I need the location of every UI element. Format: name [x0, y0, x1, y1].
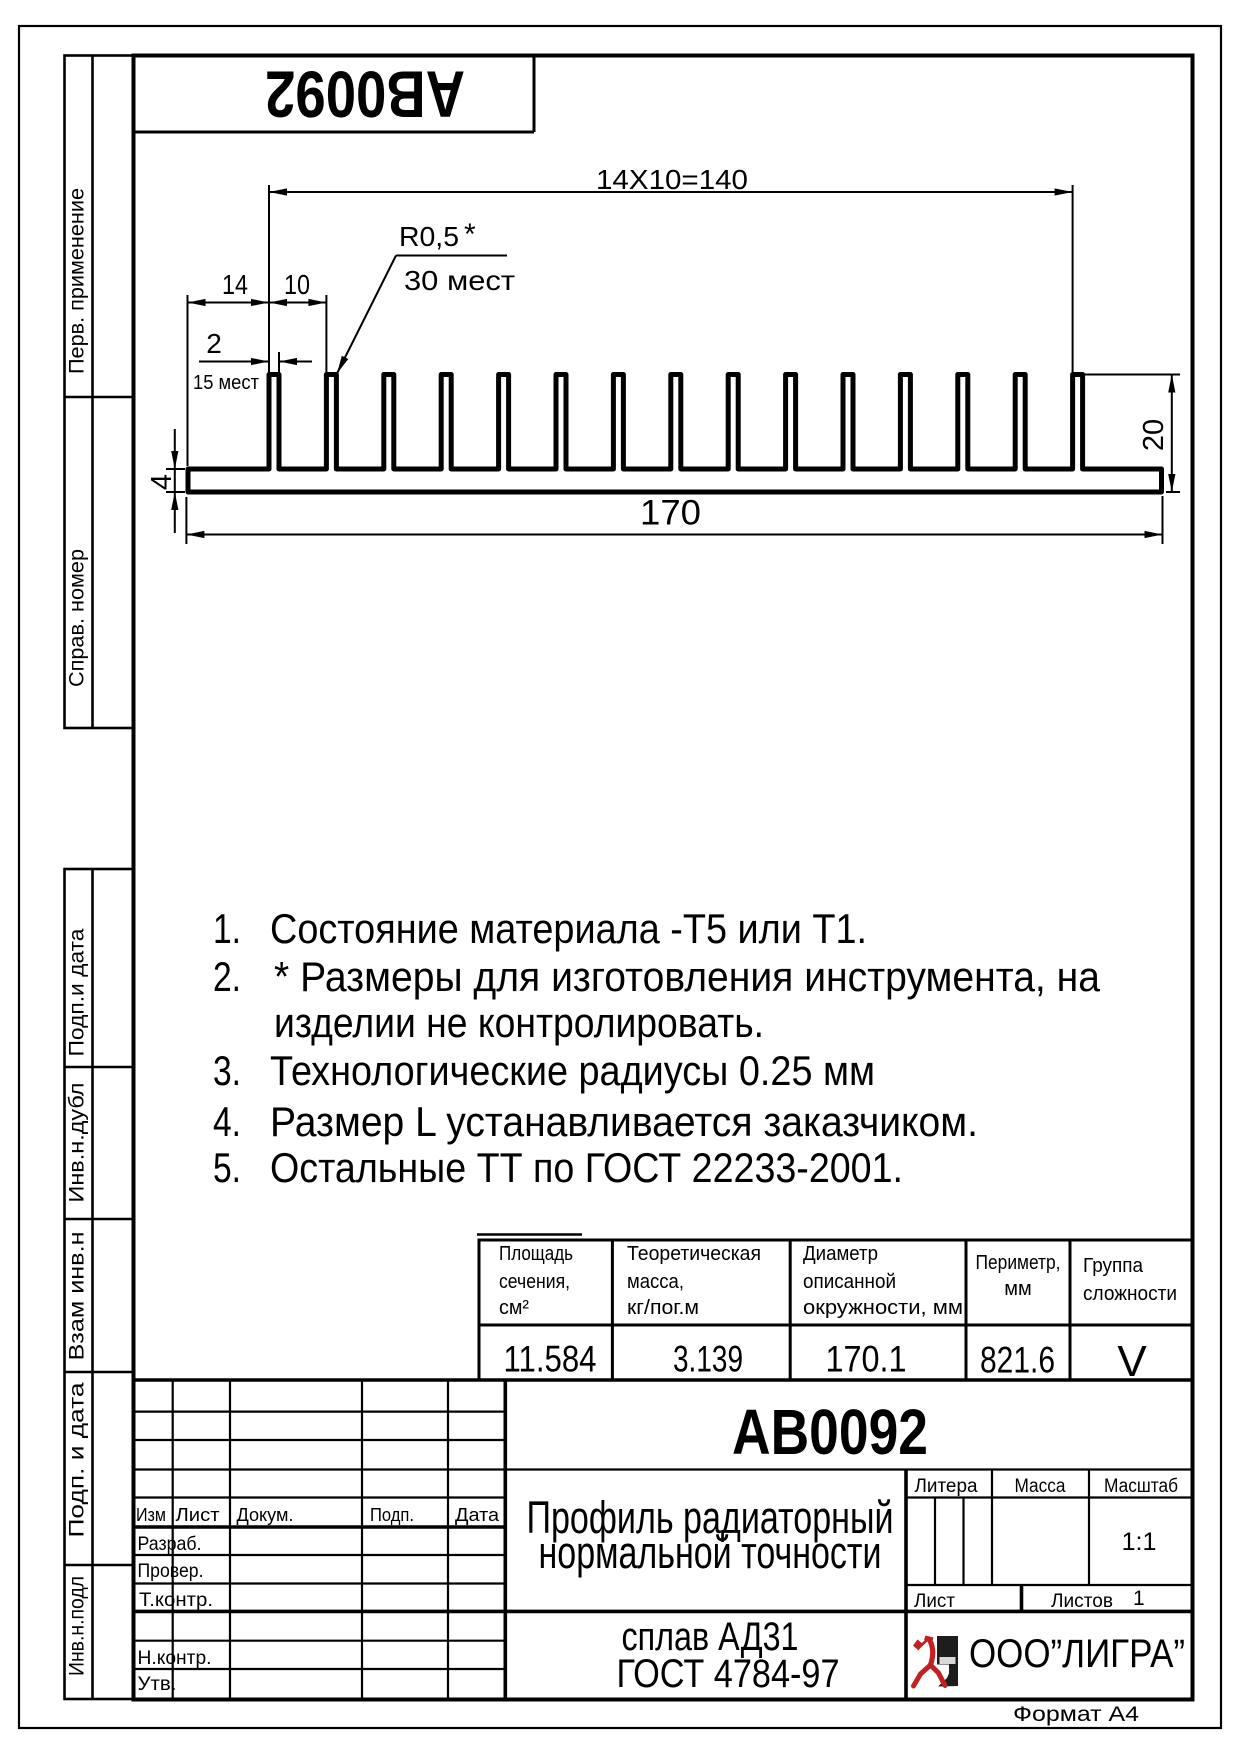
- svg-text:ГОСТ 4784-97: ГОСТ 4784-97: [617, 1652, 840, 1696]
- svg-text:Подп.: Подп.: [370, 1505, 414, 1525]
- svg-text:30 мест: 30 мест: [404, 265, 515, 296]
- svg-text:Утв.: Утв.: [138, 1673, 177, 1695]
- svg-text:Листов: Листов: [1051, 1591, 1113, 1612]
- svg-text:ООО”ЛИГРА”: ООО”ЛИГРА”: [969, 1632, 1185, 1676]
- svg-text:Докум.: Докум.: [237, 1505, 294, 1525]
- svg-text:Лист: Лист: [176, 1505, 220, 1525]
- svg-text:Теоретическая: Теоретическая: [627, 1243, 761, 1265]
- svg-text:3.: 3.: [213, 1047, 241, 1094]
- svg-text:4: 4: [146, 474, 178, 490]
- svg-text:2.: 2.: [213, 953, 241, 1000]
- svg-text:1:1: 1:1: [1122, 1528, 1157, 1556]
- svg-text:мм: мм: [1004, 1278, 1032, 1300]
- svg-text:1: 1: [1133, 1587, 1145, 1610]
- svg-text:15 мест: 15 мест: [193, 372, 259, 394]
- svg-text:Справ. номер: Справ. номер: [66, 549, 89, 687]
- svg-text:Технологические радиусы 0.25 м: Технологические радиусы 0.25 мм: [270, 1047, 875, 1094]
- svg-text:1.: 1.: [213, 905, 241, 952]
- svg-text:Т.контр.: Т.контр.: [139, 1589, 213, 1611]
- svg-text:Состояние материала -Т5 или Т1: Состояние материала -Т5 или Т1.: [270, 905, 867, 952]
- svg-text:нормальной точности: нормальной точности: [539, 1527, 882, 1578]
- svg-text:20: 20: [1138, 419, 1170, 451]
- svg-text:Изм: Изм: [136, 1505, 166, 1525]
- svg-text:11.584: 11.584: [504, 1339, 597, 1380]
- svg-text:2: 2: [206, 328, 222, 359]
- svg-text:14: 14: [222, 269, 248, 300]
- svg-text:14Х10=140: 14Х10=140: [596, 164, 748, 195]
- svg-text:кг/пог.м: кг/пог.м: [627, 1297, 699, 1319]
- svg-text:Диаметр: Диаметр: [803, 1243, 878, 1265]
- svg-text:*: *: [464, 218, 476, 251]
- svg-text:Масштаб: Масштаб: [1104, 1476, 1178, 1497]
- svg-text:3.139: 3.139: [673, 1339, 743, 1380]
- svg-text:Н.контр.: Н.контр.: [138, 1647, 212, 1669]
- svg-text:Группа: Группа: [1083, 1255, 1144, 1277]
- svg-text:821.6: 821.6: [980, 1340, 1055, 1381]
- svg-text:Масса: Масса: [1015, 1476, 1066, 1497]
- svg-text:* Размеры для изготовления инс: * Размеры для изготовления инструмента, …: [274, 953, 1101, 1000]
- svg-text:масса,: масса,: [627, 1271, 684, 1293]
- svg-text:Периметр,: Периметр,: [976, 1252, 1061, 1274]
- svg-text:Взам инв.н: Взам инв.н: [66, 1232, 89, 1361]
- svg-text:170: 170: [640, 494, 701, 533]
- svg-text:4.: 4.: [213, 1098, 241, 1145]
- svg-text:Площадь: Площадь: [499, 1243, 573, 1265]
- svg-text:Размер L устанавливается заказ: Размер L устанавливается заказчиком.: [270, 1098, 978, 1145]
- svg-text:Инв.н.подл: Инв.н.подл: [66, 1576, 89, 1676]
- svg-text:Разраб.: Разраб.: [138, 1533, 202, 1555]
- svg-text:Формат А4: Формат А4: [1013, 1703, 1139, 1726]
- svg-text:описанной: описанной: [803, 1271, 896, 1293]
- svg-text:Остальные ТТ по ГОСТ 22233-200: Остальные ТТ по ГОСТ 22233-2001.: [270, 1144, 903, 1191]
- svg-text:Литера: Литера: [915, 1476, 978, 1497]
- svg-text:R0,5: R0,5: [399, 221, 459, 252]
- svg-text:10: 10: [284, 269, 310, 300]
- svg-text:Инв.н.дубл: Инв.н.дубл: [66, 1083, 89, 1203]
- svg-text:Лист: Лист: [914, 1591, 955, 1612]
- svg-text:АВ0092: АВ0092: [732, 1396, 928, 1468]
- svg-text:изделии не контролировать.: изделии не контролировать.: [274, 999, 764, 1046]
- svg-text:Провер.: Провер.: [138, 1560, 204, 1582]
- svg-text:АВ0092: АВ0092: [265, 58, 465, 132]
- svg-text:Подп. и дата: Подп. и дата: [66, 1382, 89, 1537]
- svg-text:5.: 5.: [213, 1144, 241, 1191]
- svg-text:сечения,: сечения,: [499, 1271, 570, 1293]
- svg-text:Подп.и дата: Подп.и дата: [66, 928, 89, 1056]
- svg-text:Перв. применение: Перв. применение: [66, 188, 89, 374]
- svg-text:Дата: Дата: [455, 1505, 500, 1525]
- svg-text:окружности, мм: окружности, мм: [803, 1297, 963, 1319]
- svg-text:см²: см²: [499, 1297, 529, 1319]
- svg-text:сложности: сложности: [1083, 1283, 1177, 1305]
- svg-text:170.1: 170.1: [826, 1339, 907, 1380]
